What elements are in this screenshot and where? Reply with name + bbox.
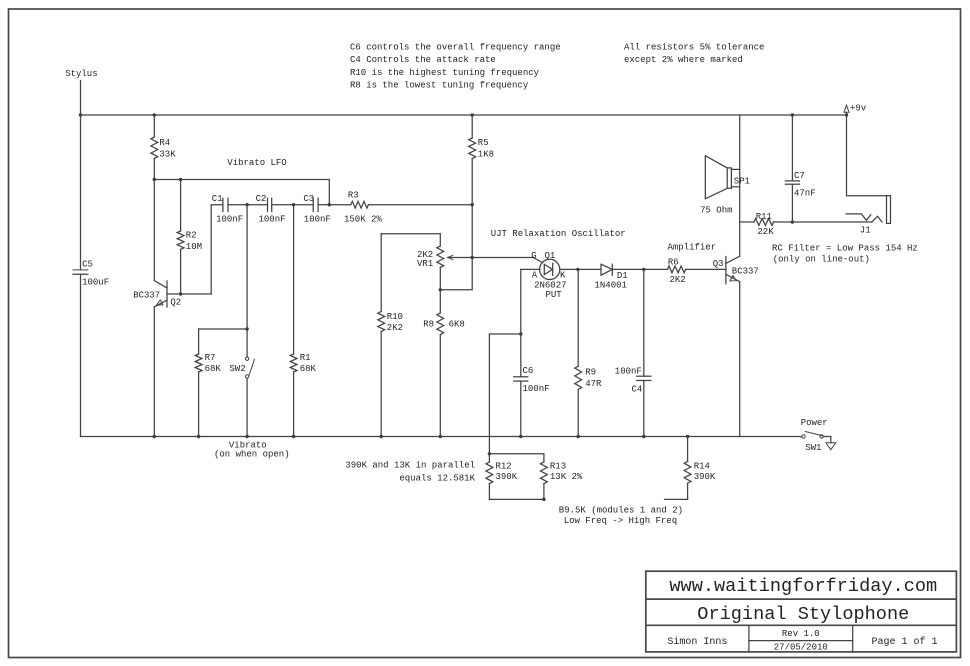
svg-text:SW1: SW1 [805,443,821,453]
svg-text:150K 2%: 150K 2% [344,214,382,224]
svg-text:Amplifier: Amplifier [668,243,717,253]
svg-text:Q2: Q2 [170,297,181,307]
svg-text:UJT Relaxation Oscillator: UJT Relaxation Oscillator [491,229,626,239]
svg-text:VR1: VR1 [417,259,433,269]
svg-text:33K: 33K [159,149,176,159]
svg-text:390K: 390K [496,472,518,482]
svg-text:C3: C3 [303,194,314,204]
svg-text:Simon Inns: Simon Inns [667,636,727,648]
svg-text:R6: R6 [668,258,679,268]
svg-text:75 Ohm: 75 Ohm [700,205,732,215]
svg-text:13K 2%: 13K 2% [550,472,583,482]
svg-text:R7: R7 [205,353,216,363]
svg-text:R9: R9 [585,368,596,378]
svg-text:G: G [531,251,536,261]
svg-text:6K8: 6K8 [449,319,465,329]
svg-text:1N4001: 1N4001 [595,281,627,291]
svg-text:+9v: +9v [850,103,867,113]
svg-text:R12: R12 [496,462,512,472]
svg-text:R11: R11 [756,212,772,222]
svg-text:D1: D1 [617,271,628,281]
svg-text:2K2: 2K2 [670,275,686,285]
svg-text:C2: C2 [256,194,267,204]
svg-text:RC Filter = Low Pass 154 Hz: RC Filter = Low Pass 154 Hz [772,243,918,253]
svg-text:R10: R10 [387,312,403,322]
svg-text:C6 controls the overall freque: C6 controls the overall frequency range [350,42,561,52]
svg-text:BC337: BC337 [732,266,759,276]
svg-text:R5: R5 [478,138,489,148]
svg-text:A: A [532,270,538,280]
svg-text:C6: C6 [523,366,534,376]
svg-text:C4 Controls the attack rate: C4 Controls the attack rate [350,55,496,65]
svg-text:1K8: 1K8 [478,149,494,159]
svg-text:Page 1 of 1: Page 1 of 1 [871,636,937,648]
svg-text:Original Stylophone: Original Stylophone [697,604,909,625]
svg-text:22K: 22K [757,227,774,237]
svg-text:SW2: SW2 [229,364,245,374]
svg-text:68K: 68K [205,364,222,374]
svg-text:100nF: 100nF [259,215,286,225]
svg-text:27/05/2010: 27/05/2010 [774,643,828,653]
svg-text:K: K [560,270,566,280]
svg-text:100nF: 100nF [216,215,243,225]
svg-text:47nF: 47nF [794,189,816,199]
svg-text:C4: C4 [632,385,643,395]
svg-text:100nF: 100nF [304,215,331,225]
svg-text:47R: 47R [585,379,602,389]
svg-text:C1: C1 [212,194,223,204]
svg-text:390K: 390K [694,472,716,482]
svg-text:C5: C5 [82,259,93,269]
svg-text:R8 is the lowest tuning freque: R8 is the lowest tuning frequency [350,81,529,91]
svg-text:All resistors 5% tolerance: All resistors 5% tolerance [624,42,764,52]
svg-text:Rev 1.0: Rev 1.0 [782,629,820,639]
svg-text:B9.5K (modules 1 and 2): B9.5K (modules 1 and 2) [559,505,683,515]
svg-text:390K and 13K in parallel: 390K and 13K in parallel [345,460,475,470]
svg-text:R14: R14 [694,462,710,472]
svg-text:R1: R1 [300,353,311,363]
svg-text:Q3: Q3 [713,259,724,269]
svg-text:100nF: 100nF [523,384,550,394]
svg-text:R8: R8 [423,319,434,329]
svg-text:68K: 68K [300,364,317,374]
svg-text:R4: R4 [159,138,170,148]
svg-text:(on when open): (on when open) [214,449,290,459]
svg-text:equals 12.581K: equals 12.581K [399,473,475,483]
svg-text:Vibrato LFO: Vibrato LFO [227,158,286,168]
svg-text:Power: Power [801,418,828,428]
svg-text:100uF: 100uF [82,278,109,288]
svg-text:PUT: PUT [546,290,563,300]
svg-text:R2: R2 [186,230,197,240]
svg-text:2K2: 2K2 [387,323,403,333]
svg-text:Q1: Q1 [545,251,556,261]
svg-text:www.waitingforfriday.com: www.waitingforfriday.com [669,576,937,597]
svg-text:(only on line-out): (only on line-out) [773,254,870,264]
svg-text:except 2% where marked: except 2% where marked [624,55,743,65]
svg-text:J1: J1 [860,226,871,236]
svg-text:SP1: SP1 [734,176,750,186]
svg-text:C7: C7 [794,171,805,181]
svg-text:R10 is the highest tuning freq: R10 is the highest tuning frequency [350,68,540,78]
svg-text:R13: R13 [550,462,566,472]
svg-text:Low Freq -> High Freq: Low Freq -> High Freq [564,516,677,526]
svg-text:Stylus: Stylus [65,69,97,79]
svg-text:100nF: 100nF [615,367,642,377]
svg-text:BC337: BC337 [133,290,160,300]
svg-text:10M: 10M [186,242,202,252]
svg-text:R3: R3 [348,191,359,201]
